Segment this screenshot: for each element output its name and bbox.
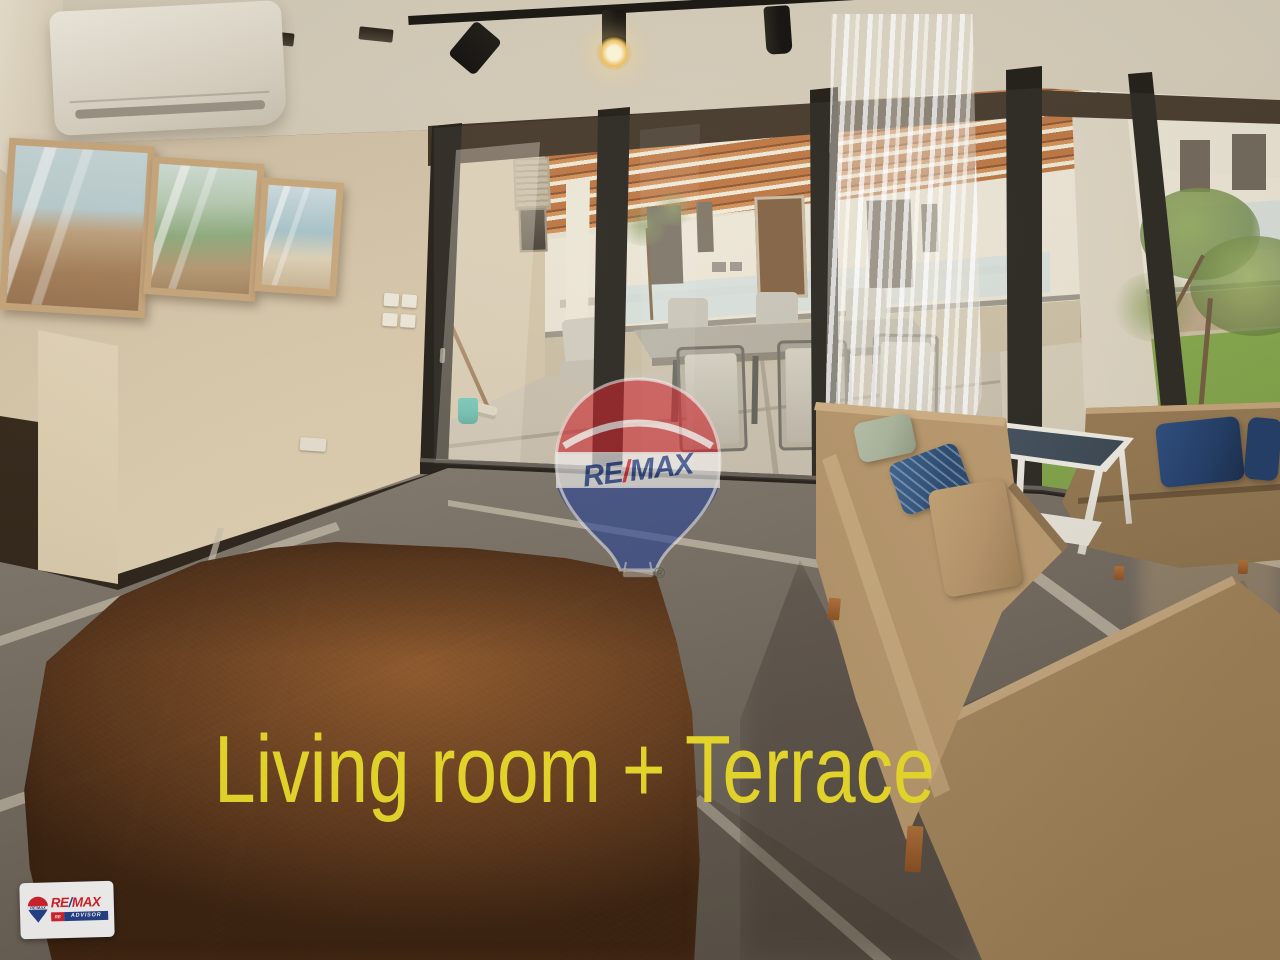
spotlight-glow [596, 36, 632, 70]
remax-corner-logo: RE/MAX RE/MAX RE ADVISOR [19, 881, 114, 939]
light-switch [383, 293, 399, 307]
ac-vent [75, 100, 265, 119]
sofa-foot [827, 598, 841, 621]
wall-art-frame [0, 138, 155, 319]
tagline-left: RE [51, 912, 64, 921]
wall-outlet [300, 437, 327, 452]
balloon-blue-section [557, 486, 719, 570]
corner-logo-balloon-icon: RE/MAX [27, 895, 50, 924]
navy-pillow [1155, 416, 1245, 488]
wall-art-frame [254, 177, 344, 296]
corner-logo-tagline: RE ADVISOR [51, 911, 108, 921]
navy-pillow [1243, 417, 1280, 482]
living-room-photo: RE/MAX ® Living room + Terrace RE/MAX RE… [0, 0, 1280, 960]
wall-art-sea [262, 185, 337, 289]
ac-unit [49, 0, 287, 136]
light-switch [400, 313, 416, 327]
corner-logo-wordmark: RE/MAX [51, 895, 101, 910]
remax-watermark-balloon: RE/MAX ® [552, 376, 724, 580]
balloon-basket [623, 570, 653, 577]
glass-glare [151, 164, 257, 295]
wall-art-frame [143, 156, 264, 301]
sofa-foot [904, 825, 923, 872]
glass-glare [6, 145, 147, 311]
glass-glare [262, 185, 337, 289]
light-switch [401, 294, 417, 308]
light-switch [382, 312, 398, 326]
registered-mark: ® [654, 565, 665, 580]
wall-art-trees [151, 164, 257, 295]
tagline-right: ADVISOR [64, 911, 108, 921]
track-spotlight [763, 5, 792, 55]
balloon-red-section [556, 379, 720, 454]
wall-art-beach [6, 145, 147, 311]
photo-caption: Living room + Terrace [214, 722, 935, 818]
sofa-foot [1238, 560, 1249, 575]
sofa-foot [1114, 566, 1125, 581]
light-switches [382, 293, 420, 331]
svg-text:RE/MAX: RE/MAX [30, 905, 46, 910]
